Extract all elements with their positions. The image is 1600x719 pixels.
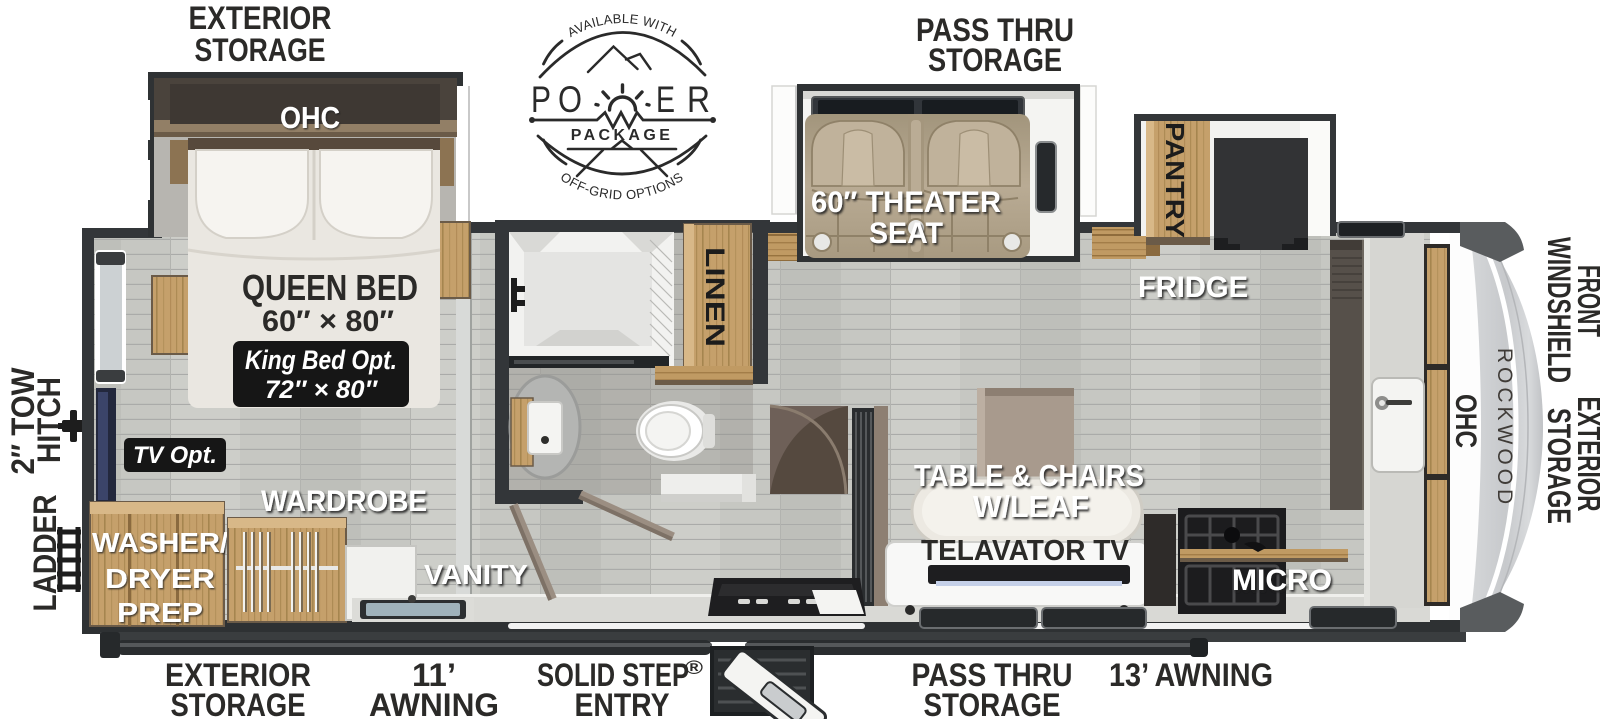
svg-text:60″ × 80″: 60″ × 80″ bbox=[262, 305, 394, 338]
svg-text:WARDROBE: WARDROBE bbox=[261, 485, 427, 518]
svg-text:OHC: OHC bbox=[1449, 394, 1482, 448]
svg-text:O: O bbox=[558, 79, 582, 120]
svg-text:STORAGE: STORAGE bbox=[924, 687, 1061, 719]
svg-text:QUEEN BED: QUEEN BED bbox=[242, 267, 418, 308]
svg-text:STORAGE: STORAGE bbox=[195, 32, 326, 68]
svg-text:13’ AWNING: 13’ AWNING bbox=[1109, 657, 1273, 693]
svg-text:FRIDGE: FRIDGE bbox=[1138, 271, 1248, 304]
svg-text:WASHER/: WASHER/ bbox=[92, 527, 228, 558]
svg-text:60″ THEATER: 60″ THEATER bbox=[811, 186, 1001, 219]
svg-text:HITCH: HITCH bbox=[31, 377, 67, 463]
svg-text:WINDSHIELD: WINDSHIELD bbox=[1541, 237, 1577, 383]
svg-text:E: E bbox=[656, 79, 675, 120]
svg-text:STORAGE: STORAGE bbox=[928, 42, 1062, 78]
svg-text:R: R bbox=[687, 79, 710, 120]
svg-text:PANTRY: PANTRY bbox=[1160, 122, 1190, 238]
svg-text:DRYER: DRYER bbox=[105, 563, 215, 594]
svg-text:LINEN: LINEN bbox=[700, 247, 730, 347]
svg-text:King Bed Opt.: King Bed Opt. bbox=[245, 345, 397, 375]
svg-text:W/LEAF: W/LEAF bbox=[973, 489, 1089, 524]
svg-text:PREP: PREP bbox=[117, 597, 203, 628]
svg-text:ENTRY: ENTRY bbox=[575, 687, 670, 719]
svg-text:TV Opt.: TV Opt. bbox=[133, 442, 217, 469]
svg-text:72″ × 80″: 72″ × 80″ bbox=[265, 376, 378, 404]
svg-text:STORAGE: STORAGE bbox=[171, 687, 306, 719]
svg-text:MICRO: MICRO bbox=[1232, 564, 1332, 597]
svg-text:ROCKWOOD: ROCKWOOD bbox=[1493, 348, 1516, 508]
svg-text:®: ® bbox=[685, 658, 703, 679]
svg-text:SEAT: SEAT bbox=[869, 217, 943, 250]
svg-text:STORAGE: STORAGE bbox=[1541, 408, 1577, 524]
svg-text:EXTERIOR: EXTERIOR bbox=[189, 0, 332, 36]
svg-text:TABLE & CHAIRS: TABLE & CHAIRS bbox=[914, 458, 1144, 493]
svg-text:AVAILABLE WITH: AVAILABLE WITH bbox=[565, 11, 680, 40]
svg-text:P: P bbox=[531, 79, 551, 120]
svg-text:OHC: OHC bbox=[280, 100, 340, 135]
svg-text:VANITY: VANITY bbox=[424, 559, 528, 590]
svg-text:TELAVATOR TV: TELAVATOR TV bbox=[921, 535, 1130, 567]
svg-text:AWNING: AWNING bbox=[369, 687, 499, 719]
